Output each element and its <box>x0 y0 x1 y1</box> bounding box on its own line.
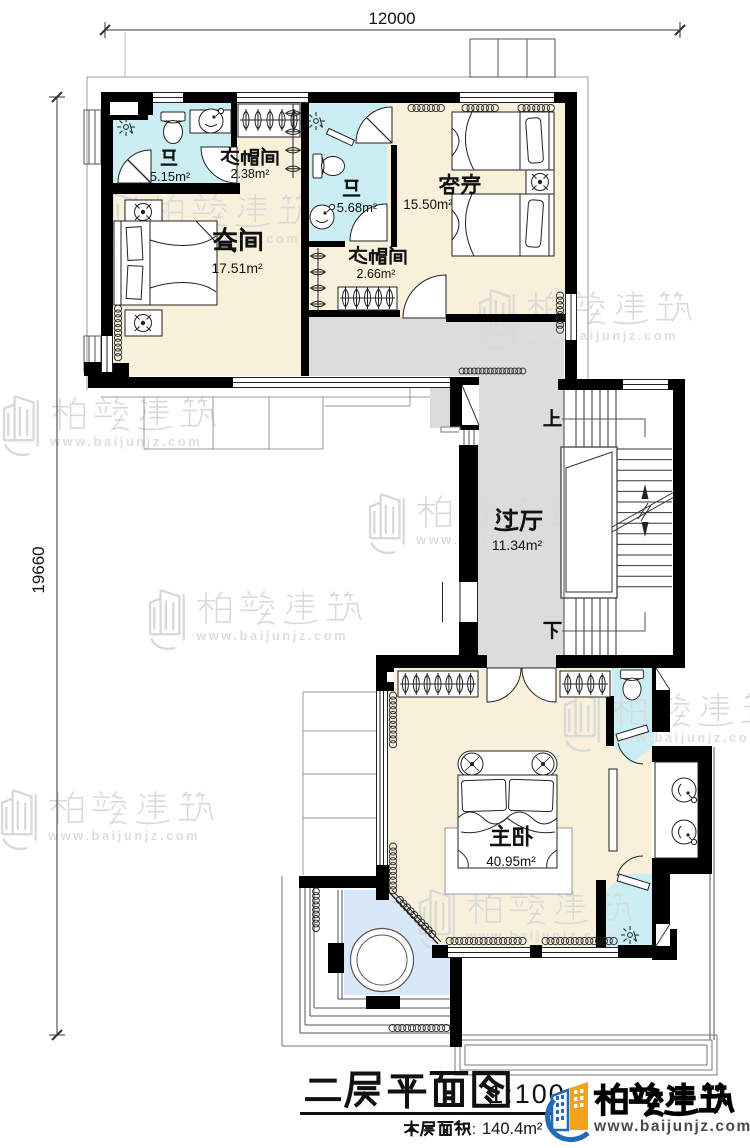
svg-text:140.4m²: 140.4m² <box>482 1120 543 1138</box>
svg-text:12000: 12000 <box>368 9 415 28</box>
svg-text:40.95m²: 40.95m² <box>486 854 536 869</box>
svg-text:www.baijunjz.com: www.baijunjz.com <box>47 828 200 843</box>
svg-text:5.15m²: 5.15m² <box>150 169 191 184</box>
svg-text:11.34m²: 11.34m² <box>492 537 543 553</box>
svg-text:www.baijunjz.com: www.baijunjz.com <box>49 434 202 449</box>
svg-text:www.baijunjz.com: www.baijunjz.com <box>525 328 678 343</box>
svg-text:17.51m²: 17.51m² <box>211 260 263 276</box>
svg-text::: : <box>472 1121 476 1138</box>
svg-text:www.baijunjz.com: www.baijunjz.com <box>195 628 348 643</box>
svg-text:19660: 19660 <box>29 546 48 593</box>
svg-text:2.66m²: 2.66m² <box>357 267 396 281</box>
svg-text:15.50m²: 15.50m² <box>403 197 453 212</box>
svg-text:5.68m²: 5.68m² <box>337 200 378 215</box>
svg-text:2.38m²: 2.38m² <box>231 167 270 181</box>
svg-text:www.baijunjz.com: www.baijunjz.com <box>593 1118 750 1135</box>
